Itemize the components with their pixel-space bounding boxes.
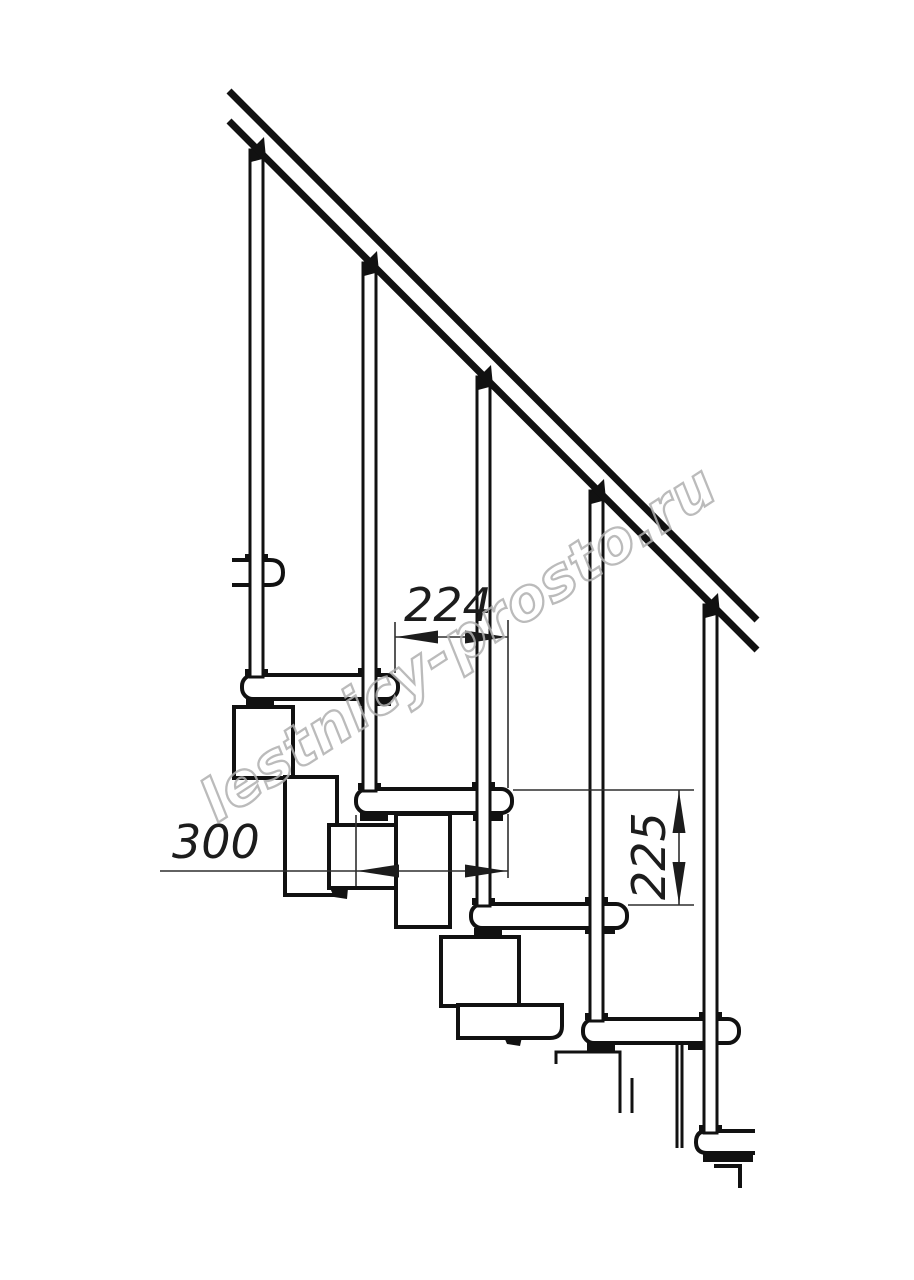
dimension-label-224: 224: [404, 578, 492, 632]
stringer-module: [458, 1005, 562, 1038]
baluster-2: [363, 263, 376, 791]
dimension-label-300: 300: [172, 815, 260, 869]
dimension-label-225: 225: [622, 812, 676, 900]
stringer-module: [234, 707, 293, 778]
stringer-module: [441, 937, 519, 1006]
baluster-3: [477, 377, 490, 906]
staircase-drawing: 224 300 225: [0, 0, 914, 1280]
baluster-1: [250, 150, 263, 677]
handrail: [229, 91, 757, 650]
baluster-5: [704, 605, 717, 1133]
stringer-module: [329, 825, 403, 888]
baluster-4: [590, 491, 603, 1021]
technical-drawing-page: 224 300 225 lestnicy-prosto.ru: [0, 0, 914, 1280]
